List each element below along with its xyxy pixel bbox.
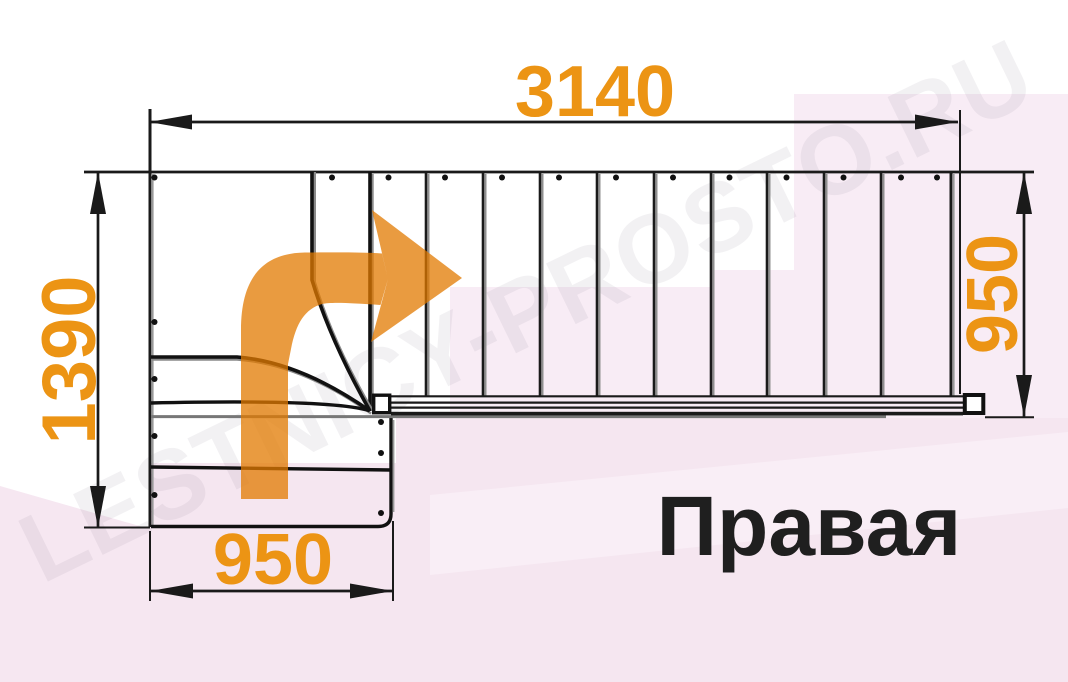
svg-text:1390: 1390 bbox=[27, 275, 112, 444]
svg-text:Правая: Правая bbox=[657, 479, 962, 573]
svg-text:3140: 3140 bbox=[515, 52, 675, 132]
svg-text:950: 950 bbox=[953, 234, 1033, 354]
svg-text:950: 950 bbox=[213, 520, 333, 600]
